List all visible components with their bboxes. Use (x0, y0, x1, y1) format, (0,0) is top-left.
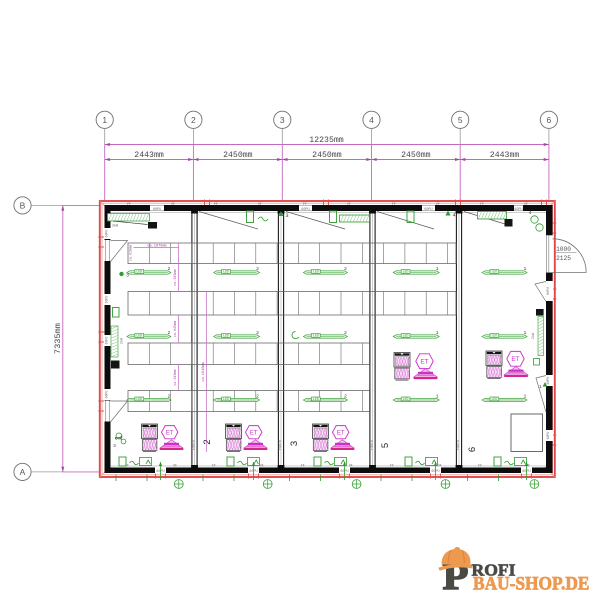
svg-text:60PU: 60PU (105, 391, 109, 399)
svg-text:ca.1970mm: ca.1970mm (147, 244, 166, 248)
svg-text:LED: LED (492, 270, 498, 274)
svg-text:VF: VF (524, 202, 528, 206)
svg-text:2450mm: 2450mm (401, 151, 431, 160)
svg-text:4: 4 (369, 115, 374, 125)
svg-text:3: 3 (280, 115, 285, 125)
svg-text:2: 2 (344, 330, 347, 336)
svg-text:LED: LED (136, 270, 142, 274)
svg-text:LED: LED (313, 397, 319, 401)
svg-text:2: 2 (344, 266, 347, 272)
svg-text:FF: FF (303, 202, 307, 206)
svg-text:60PU: 60PU (105, 337, 109, 345)
svg-text:LED: LED (313, 270, 319, 274)
svg-text:FF: FF (478, 463, 482, 467)
svg-text:ca.645mm: ca.645mm (174, 321, 178, 337)
svg-text:ET: ET (420, 358, 428, 365)
svg-text:FF: FF (212, 463, 216, 467)
svg-text:2kW: 2kW (120, 337, 125, 344)
svg-text:LED: LED (136, 397, 142, 401)
svg-text:2kW: 2kW (531, 332, 536, 339)
svg-text:LED: LED (136, 334, 142, 338)
svg-text:60PU: 60PU (546, 377, 550, 385)
svg-text:FF: FF (392, 202, 396, 206)
svg-text:1: 1 (524, 330, 527, 336)
svg-text:LED: LED (492, 334, 498, 338)
svg-text:60PU: 60PU (301, 208, 309, 212)
svg-text:VF: VF (347, 202, 351, 206)
svg-text:ca.645mm: ca.645mm (174, 269, 178, 285)
svg-text:3: 3 (126, 273, 129, 279)
svg-text:FF: FF (480, 202, 484, 206)
svg-text:1: 1 (102, 115, 107, 125)
svg-text:1: 1 (436, 266, 439, 272)
svg-text:60PU: 60PU (514, 208, 522, 212)
svg-text:5: 5 (380, 443, 391, 448)
svg-text:2: 2 (167, 330, 170, 336)
svg-text:1: 1 (524, 394, 527, 400)
svg-text:LED: LED (403, 397, 409, 401)
svg-text:60PU: 60PU (546, 287, 550, 295)
svg-text:VF: VF (349, 463, 353, 467)
svg-text:2443mm: 2443mm (490, 151, 520, 160)
svg-text:LED: LED (403, 270, 409, 274)
svg-text:VF: VF (260, 463, 264, 467)
svg-text:F90/B: F90/B (192, 440, 196, 450)
svg-text:2450mm: 2450mm (223, 151, 253, 160)
svg-text:1: 1 (539, 385, 542, 390)
svg-text:60PU: 60PU (153, 208, 161, 212)
svg-text:3: 3 (289, 441, 300, 446)
svg-text:ca.645mm: ca.645mm (174, 369, 178, 385)
svg-text:2: 2 (202, 439, 213, 444)
svg-text:FF: FF (301, 463, 305, 467)
svg-text:FF: FF (390, 463, 394, 467)
svg-text:VF: VF (438, 463, 442, 467)
svg-text:LED: LED (223, 397, 229, 401)
svg-text:LED: LED (313, 334, 319, 338)
svg-text:6: 6 (467, 447, 478, 452)
svg-text:3: 3 (113, 443, 116, 449)
svg-text:1: 1 (436, 330, 439, 336)
svg-text:LED: LED (492, 397, 498, 401)
svg-text:LED: LED (223, 270, 229, 274)
svg-text:VF: VF (436, 202, 440, 206)
svg-text:1: 1 (524, 266, 527, 272)
svg-text:2: 2 (256, 266, 259, 272)
svg-text:6: 6 (547, 115, 552, 125)
svg-text:LED: LED (403, 334, 409, 338)
svg-text:VF: VF (173, 463, 177, 467)
svg-text:ET: ET (250, 430, 258, 436)
svg-text:2: 2 (256, 394, 259, 400)
svg-text:60PU: 60PU (424, 208, 432, 212)
svg-text:3: 3 (285, 213, 288, 219)
svg-text:A: A (20, 467, 26, 477)
svg-text:FF: FF (127, 202, 131, 206)
svg-text:2450mm: 2450mm (312, 151, 342, 160)
svg-text:FF: FF (214, 202, 218, 206)
svg-text:12235mm: 12235mm (309, 136, 343, 145)
svg-text:60PU: 60PU (546, 432, 550, 440)
svg-text:2kW: 2kW (112, 224, 119, 229)
svg-text:ET: ET (337, 430, 345, 436)
svg-text:LED: LED (223, 334, 229, 338)
svg-text:2125: 2125 (556, 255, 571, 262)
svg-text:2: 2 (167, 266, 170, 272)
svg-text:2443mm: 2443mm (134, 151, 164, 160)
svg-text:2: 2 (167, 394, 170, 400)
svg-text:4: 4 (452, 213, 455, 219)
svg-text:7335mm: 7335mm (53, 323, 63, 354)
svg-text:1: 1 (436, 394, 439, 400)
svg-text:1000: 1000 (556, 246, 571, 253)
svg-text:F90/B: F90/B (278, 440, 282, 450)
svg-text:1: 1 (114, 435, 125, 440)
svg-text:F90/B: F90/B (456, 440, 460, 450)
svg-text:VF: VF (171, 202, 175, 206)
svg-text:F90/B: F90/B (370, 440, 374, 450)
svg-text:BAU-SHOP.DE: BAU-SHOP.DE (473, 574, 590, 595)
svg-text:60PU: 60PU (105, 230, 109, 238)
svg-text:ca.610mm: ca.610mm (130, 245, 134, 261)
svg-text:2: 2 (191, 115, 196, 125)
svg-text:2: 2 (256, 330, 259, 336)
svg-text:ET: ET (511, 356, 519, 363)
svg-text:ET: ET (166, 430, 174, 436)
svg-text:VF: VF (258, 202, 262, 206)
svg-text:4: 4 (529, 210, 532, 216)
svg-text:2: 2 (344, 394, 347, 400)
svg-text:B: B (20, 201, 26, 211)
svg-text:ca.1910mm: ca.1910mm (202, 362, 206, 381)
svg-text:60PU: 60PU (105, 296, 109, 304)
svg-text:5: 5 (458, 115, 463, 125)
